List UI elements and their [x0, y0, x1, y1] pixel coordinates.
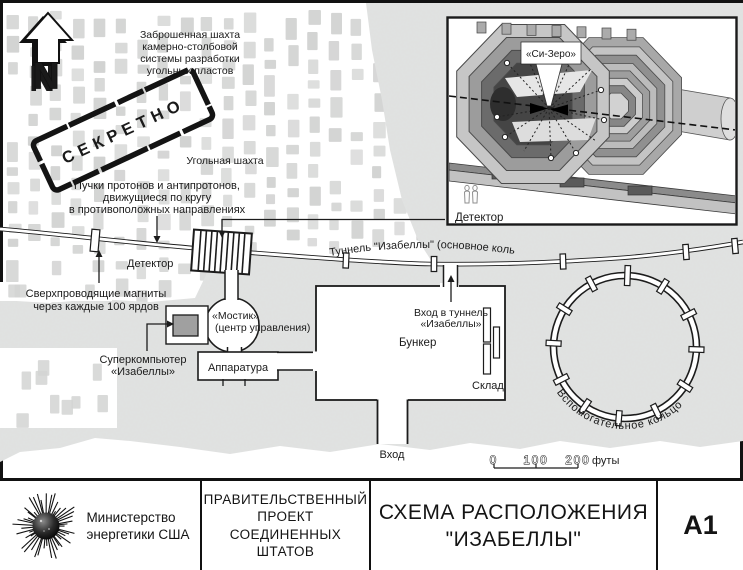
svg-text:N: N: [33, 55, 59, 96]
svg-text:угольных пластов: угольных пластов: [147, 65, 234, 77]
inset-detector-label: Детектор: [455, 212, 503, 224]
control-center-label: «Мостик»: [212, 310, 259, 322]
coal-mine-label: Угольная шахта: [186, 155, 263, 167]
agency-cell: Министерство энергетики США: [0, 481, 202, 570]
entrance-label: Вход: [380, 449, 405, 461]
bunker-label: Бункер: [399, 337, 436, 349]
apparatus-label: Аппаратура: [208, 362, 269, 374]
drawing-title-cell: СХЕМА РАСПОЛОЖЕНИЯ "ИЗАБЕЛЛЫ": [371, 481, 658, 570]
detector-label: Детектор: [127, 258, 173, 270]
svg-text:движущиеся по кругу: движущиеся по кругу: [103, 192, 212, 204]
scale-bar: 0 100 200 футы: [490, 455, 620, 468]
magnets-label: Сверхпроводящие магниты: [26, 288, 167, 300]
supercomputer-label: Суперкомпьютер: [99, 354, 186, 366]
detector-inset: «Си-Зеро» Детектор: [448, 18, 740, 225]
north-arrow-icon: N N: [19, 13, 72, 99]
scale-unit-label: футы: [592, 455, 619, 467]
svg-text:«Изабеллы»: «Изабеллы»: [111, 366, 175, 378]
svg-text:в противоположных направлениях: в противоположных направлениях: [69, 204, 246, 216]
svg-text:камерно-столбовой: камерно-столбовой: [142, 41, 238, 53]
beams-label: Пучки протонов и антипротонов,: [74, 180, 240, 192]
svg-text:системы разработки: системы разработки: [140, 53, 240, 65]
c-zero-label: «Си-Зеро»: [526, 49, 576, 60]
drawing-title: СХЕМА РАСПОЛОЖЕНИЯ: [379, 499, 648, 526]
svg-text:через каждые 100 ярдов: через каждые 100 ярдов: [33, 301, 159, 313]
svg-text:«Изабеллы»: «Изабеллы»: [420, 318, 481, 330]
project-cell: ПРАВИТЕЛЬСТВЕННЫЙ ПРОЕКТ СОЕДИНЕННЫХ ШТА…: [202, 481, 371, 570]
doe-logo: [10, 487, 82, 565]
svg-text:(центр управления): (центр управления): [215, 322, 310, 334]
site-plan: Заброшенная шахта камерно-столбовой сист…: [0, 0, 743, 478]
title-block: Министерство энергетики США ПРАВИТЕЛЬСТВ…: [0, 478, 743, 570]
agency-name: Министерство энергетики США: [86, 509, 189, 543]
supercomputer-room: [166, 306, 208, 344]
sheet-number: А1: [658, 481, 743, 570]
drawing-sheet: Заброшенная шахта камерно-столбовой сист…: [0, 0, 743, 570]
storage-label: Склад: [472, 380, 504, 392]
abandoned-mine-label: Заброшенная шахта: [140, 29, 240, 41]
starburst-icon: [33, 512, 60, 539]
